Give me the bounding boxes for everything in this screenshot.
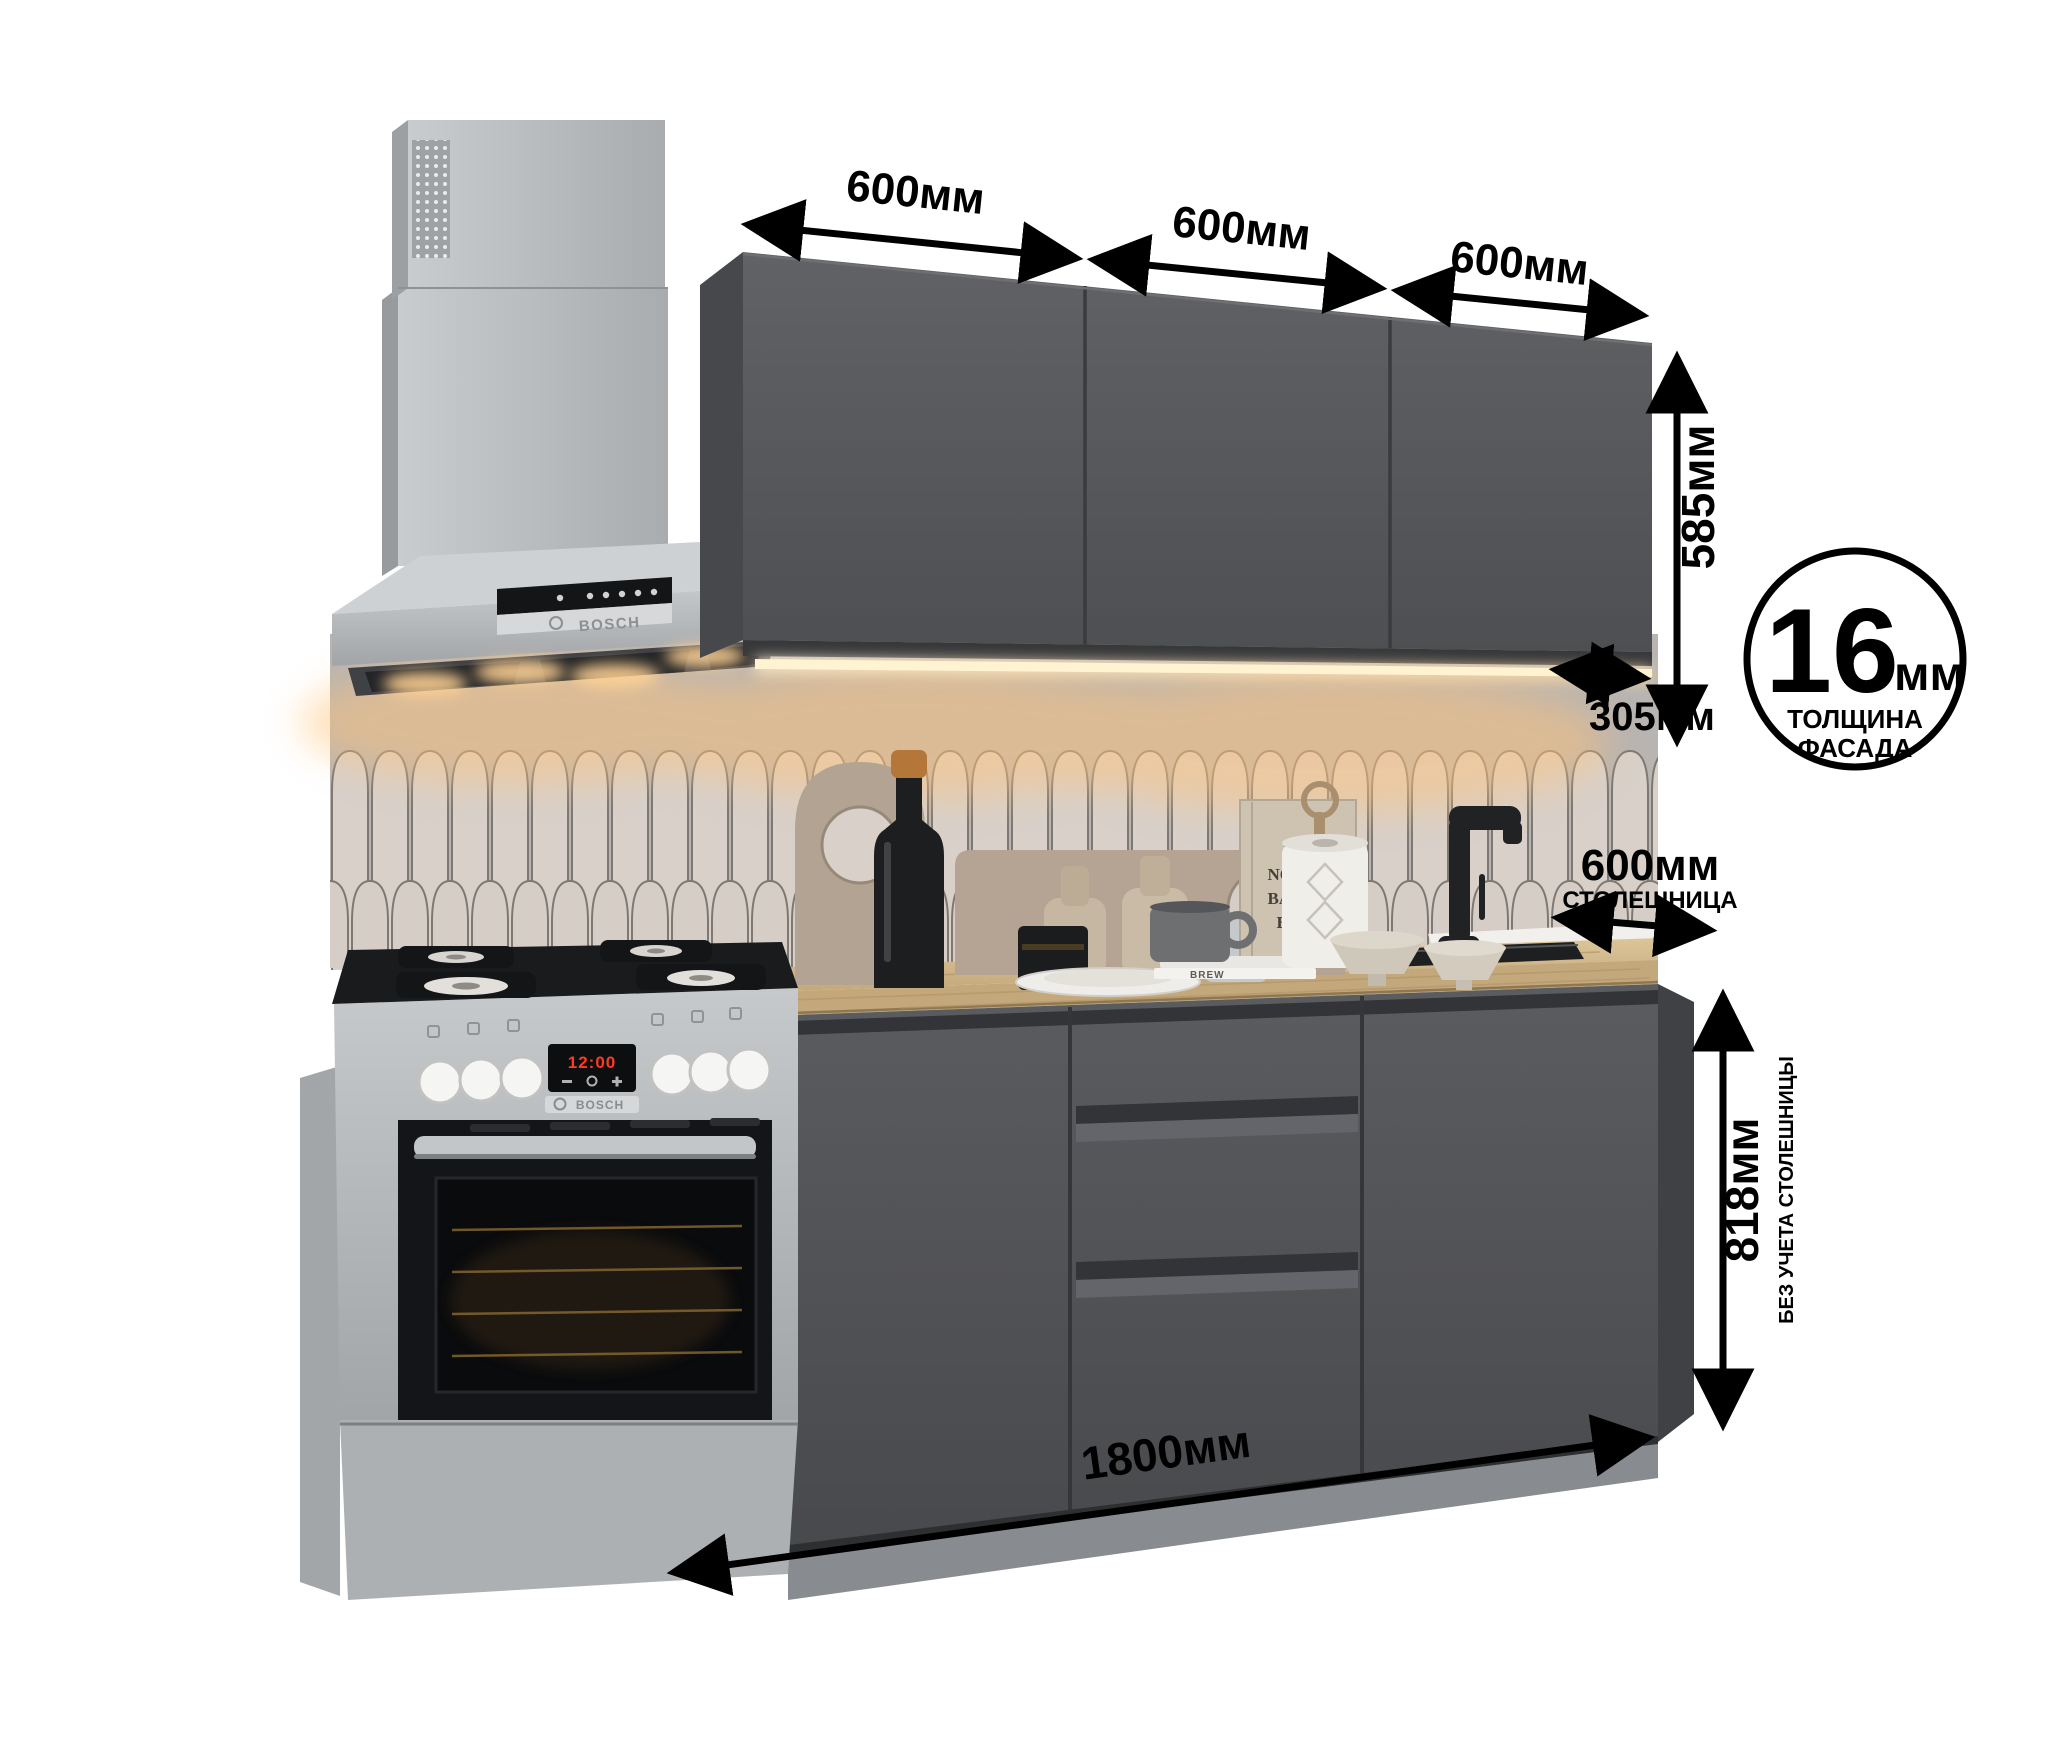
knob-2 — [460, 1059, 502, 1101]
oven-window — [436, 1178, 756, 1392]
upper-cabinets — [700, 252, 1652, 682]
badge-value: 16 — [1765, 584, 1898, 718]
badge-unit: мм — [1894, 648, 1965, 701]
burner-front-right — [636, 964, 766, 990]
knob-6 — [728, 1049, 770, 1091]
dimension-caption-base-height: БЕЗ УЧЕТА СТОЛЕШНИЦЫ — [1776, 1056, 1798, 1324]
knob-5 — [690, 1051, 732, 1093]
kitchen-product-diagram: BOSCH — [0, 0, 2048, 1757]
oven-handle-shadow — [414, 1154, 756, 1159]
burner-back-left — [398, 946, 514, 968]
dimension-label-width-2: 600мм — [1170, 197, 1313, 260]
dimension-label-counter-depth: 600мм — [1581, 841, 1720, 890]
dimension-caption-counter-depth: СТОЛЕШНИЦА — [1562, 887, 1737, 914]
stove-side — [300, 1066, 340, 1596]
dimension-arrow-width-2 — [1096, 260, 1378, 288]
badge-caption-1: ТОЛЩИНА — [1787, 704, 1923, 734]
hood-duct-lower — [398, 288, 668, 566]
bottle-cap — [891, 750, 927, 778]
base-cabinets — [765, 984, 1694, 1600]
dimension-label-upper-height: 585мм — [1672, 425, 1724, 570]
paper-towel-core — [1312, 839, 1338, 847]
hood-duct-side-lower — [382, 288, 398, 576]
knob-4 — [651, 1053, 693, 1095]
bottle-highlight — [884, 842, 891, 962]
hood-duct-side-upper — [392, 120, 408, 300]
dimension-label-upper-depth: 305мм — [1589, 695, 1715, 739]
burner-front-left — [396, 972, 536, 998]
stove-display: 12:00 — [548, 1044, 636, 1092]
faucet-lever — [1479, 874, 1485, 920]
dimension-label-width-3: 600мм — [1448, 232, 1591, 295]
wine-level — [1022, 944, 1084, 950]
dimension-label-width-1: 600мм — [844, 161, 987, 224]
book-stack-spine: BREW — [1190, 970, 1225, 981]
scene: BOSCH — [0, 0, 2048, 1757]
dimension-label-base-height: 818мм — [1716, 1118, 1768, 1263]
dimension-arrow-width-1 — [750, 225, 1074, 258]
faucet-spout — [1503, 822, 1522, 844]
badge-caption-2: ФАСАДА — [1798, 733, 1913, 763]
faucet-column — [1449, 818, 1470, 942]
upper-cabinet-front — [743, 252, 1652, 652]
oven — [398, 1118, 772, 1424]
stove-logo-strip: BOSCH — [545, 1096, 639, 1113]
knob-3 — [501, 1057, 543, 1099]
display-time: 12:00 — [568, 1053, 616, 1072]
upper-cabinet-side — [700, 252, 743, 658]
knob-1 — [419, 1061, 461, 1103]
stove-brand-label: BOSCH — [576, 1098, 624, 1112]
dimension-arrow-width-3 — [1400, 291, 1640, 315]
gas-stove: 12:00 BOSCH — [300, 940, 798, 1600]
stove-base-drawer — [340, 1420, 798, 1600]
burner-back-right — [600, 940, 712, 962]
hood-vent-grille — [412, 140, 450, 258]
facade-thickness-badge: 16 мм ТОЛЩИНА ФАСАДА — [1747, 551, 1965, 767]
base-cabinet-side — [1658, 984, 1694, 1442]
